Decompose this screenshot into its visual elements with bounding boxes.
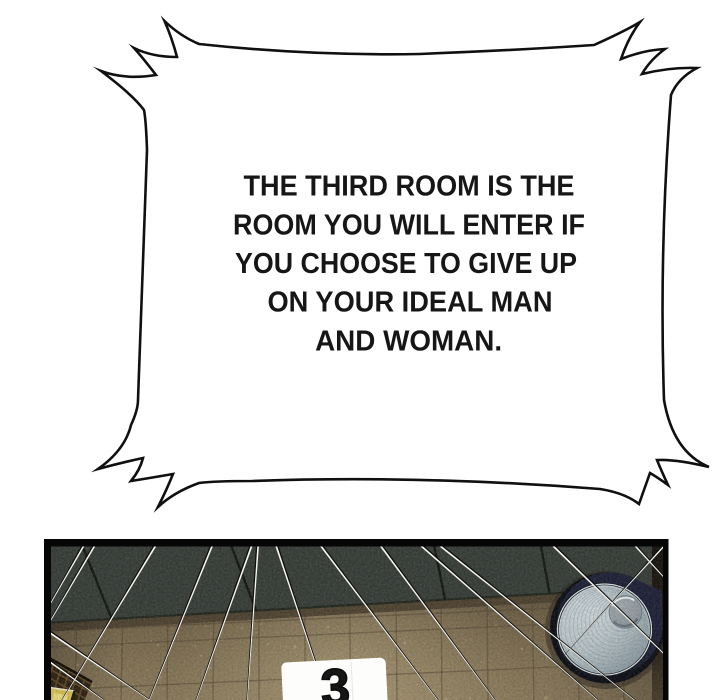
- svg-text:THE THIRD ROOM IS THE: THE THIRD ROOM IS THE: [244, 171, 575, 203]
- svg-text:ROOM YOU WILL ENTER IF: ROOM YOU WILL ENTER IF: [233, 209, 585, 241]
- svg-text:ON YOUR IDEAL MAN: ON YOUR IDEAL MAN: [268, 287, 553, 319]
- svg-text:3: 3: [319, 658, 351, 700]
- svg-text:YOU CHOOSE TO GIVE UP: YOU CHOOSE TO GIVE UP: [235, 248, 577, 280]
- svg-text:AND WOMAN.: AND WOMAN.: [315, 325, 502, 357]
